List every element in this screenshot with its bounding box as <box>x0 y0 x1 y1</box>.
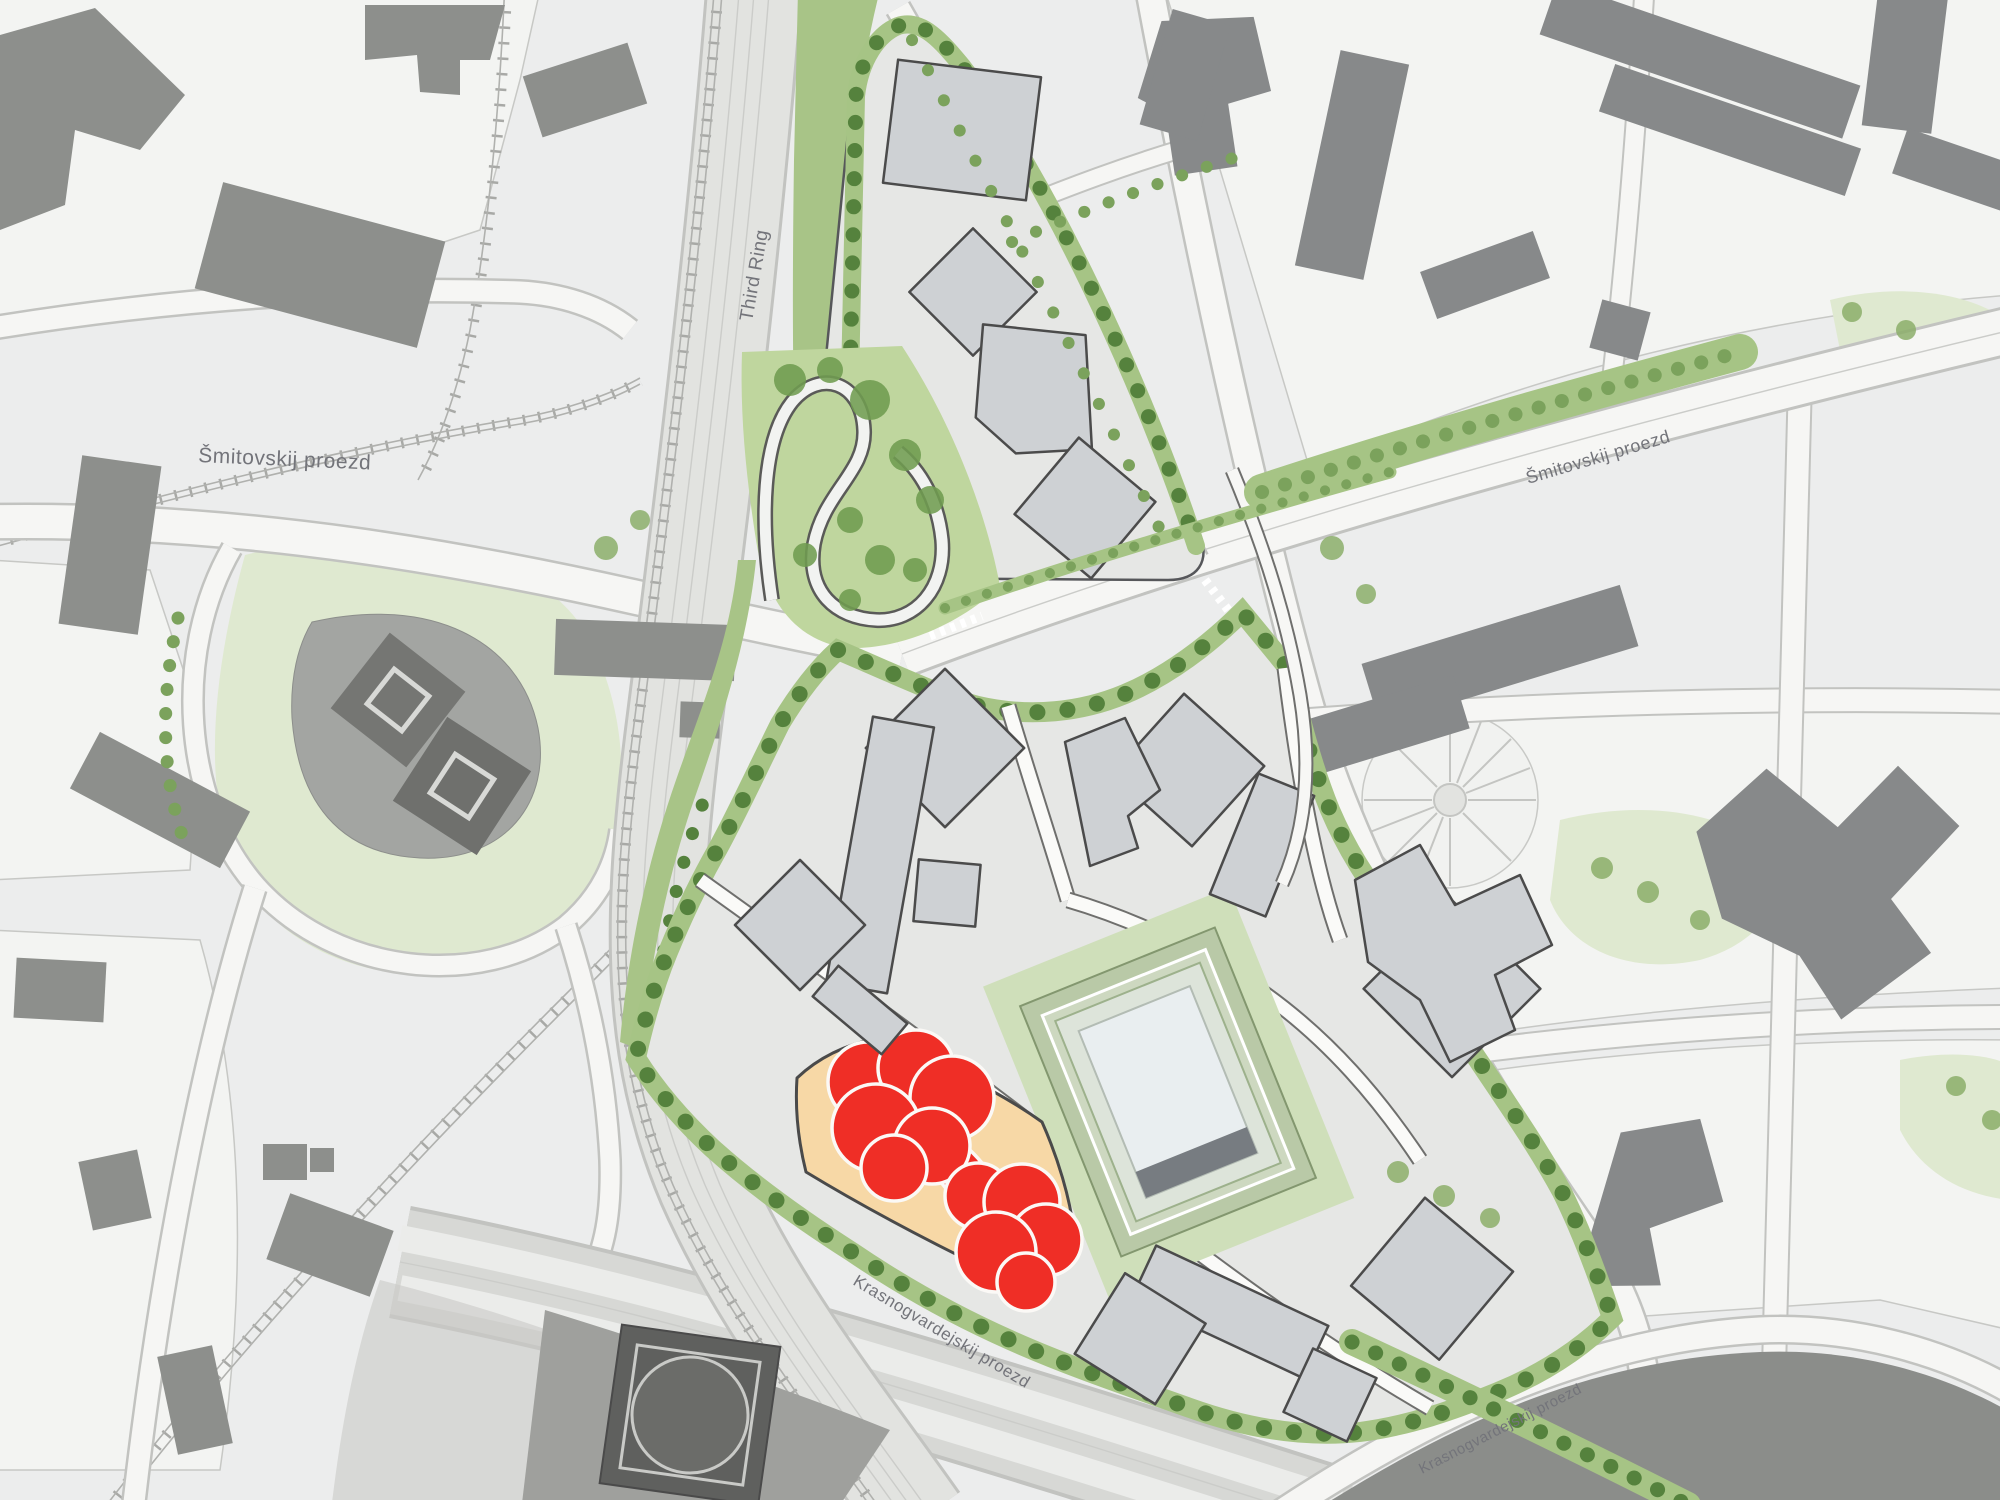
map-shape <box>310 1148 334 1172</box>
map-shape <box>1946 1076 1966 1096</box>
map-shape <box>1591 857 1613 879</box>
map-shape <box>817 357 843 383</box>
map-shape <box>594 536 618 560</box>
map-shape <box>865 545 895 575</box>
map-shape <box>837 507 863 533</box>
map-shape <box>1637 881 1659 903</box>
gas-holder-building <box>600 1325 781 1500</box>
map-shape <box>1434 784 1466 816</box>
map-shape <box>1690 910 1710 930</box>
map-shape <box>1320 536 1344 560</box>
site-plan-map: Šmitovskij proezd Third Ring Šmitovskij … <box>0 0 2000 1500</box>
map-shape <box>1387 1161 1409 1183</box>
masterplan-svg: Šmitovskij proezd Third Ring Šmitovskij … <box>0 0 2000 1500</box>
map-shape <box>793 543 817 567</box>
map-shape <box>889 439 921 471</box>
map-shape <box>263 1144 307 1180</box>
map-shape <box>839 589 861 611</box>
map-shape <box>1480 1208 1500 1228</box>
map-shape <box>774 364 806 396</box>
map-shape <box>554 619 736 681</box>
map-shape <box>861 1135 927 1201</box>
map-shape <box>1842 302 1862 322</box>
map-shape <box>1433 1185 1455 1207</box>
map-shape <box>903 558 927 582</box>
map-shape <box>913 859 980 926</box>
map-shape <box>850 380 890 420</box>
map-shape <box>630 510 650 530</box>
map-shape <box>997 1253 1055 1311</box>
map-shape <box>13 958 106 1023</box>
map-shape <box>1896 320 1916 340</box>
map-shape <box>916 486 944 514</box>
map-shape <box>1356 584 1376 604</box>
